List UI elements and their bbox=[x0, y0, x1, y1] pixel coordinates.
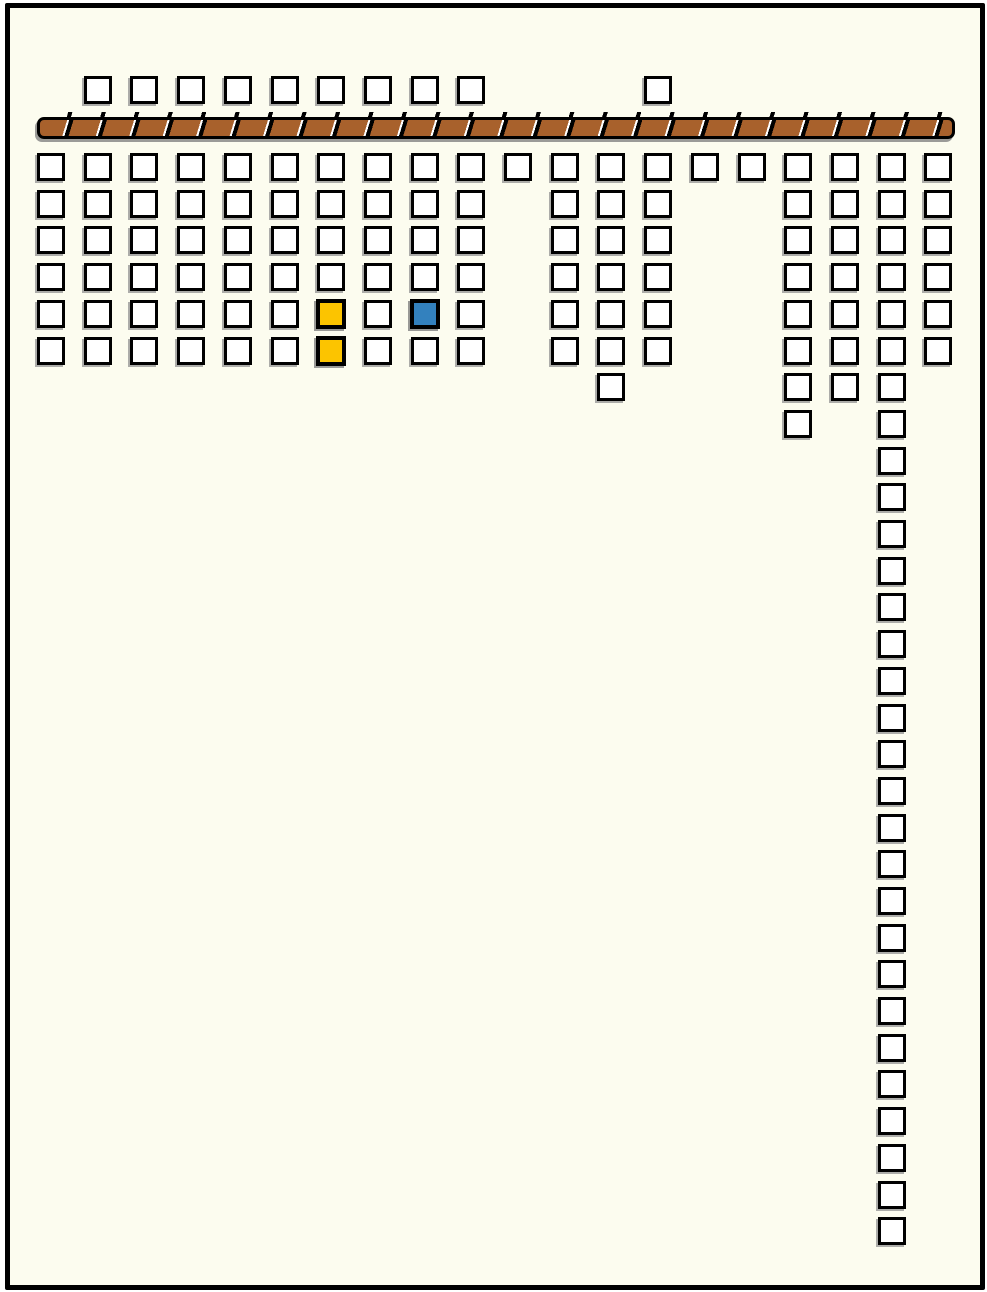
square-row-27-col19[interactable] bbox=[878, 1107, 906, 1135]
square-row-01-col12[interactable] bbox=[551, 153, 579, 181]
square-row-01-col14[interactable] bbox=[644, 153, 672, 181]
square-row-04-col14[interactable] bbox=[644, 263, 672, 291]
square-row-08-col19[interactable] bbox=[878, 410, 906, 438]
square-row-07-col17[interactable] bbox=[784, 373, 812, 401]
square-row-06-col2[interactable] bbox=[84, 337, 112, 365]
square-row-06-col1[interactable] bbox=[37, 337, 65, 365]
square-row-03-col4[interactable] bbox=[177, 226, 205, 254]
square-row-07-col19[interactable] bbox=[878, 373, 906, 401]
square-row-01-col19[interactable] bbox=[878, 153, 906, 181]
square-row-03-col9[interactable] bbox=[411, 226, 439, 254]
square-row-03-col20[interactable] bbox=[924, 226, 952, 254]
square-row-03-col12[interactable] bbox=[551, 226, 579, 254]
square-row-03-col6[interactable] bbox=[271, 226, 299, 254]
square-row-11-col19[interactable] bbox=[878, 520, 906, 548]
square-row-01-col13[interactable] bbox=[597, 153, 625, 181]
square-row-01-col15[interactable] bbox=[691, 153, 719, 181]
square-row-05-col13[interactable] bbox=[597, 300, 625, 328]
square-row-01-col20[interactable] bbox=[924, 153, 952, 181]
square-row-06-col4[interactable] bbox=[177, 337, 205, 365]
square-row-03-col8[interactable] bbox=[364, 226, 392, 254]
square-row-13-col19[interactable] bbox=[878, 593, 906, 621]
square-row-06-col14[interactable] bbox=[644, 337, 672, 365]
square-above-wall-col10[interactable] bbox=[457, 76, 485, 104]
square-row-01-col17[interactable] bbox=[784, 153, 812, 181]
square-row-01-col1[interactable] bbox=[37, 153, 65, 181]
square-above-wall-col8[interactable] bbox=[364, 76, 392, 104]
square-row-15-col19[interactable] bbox=[878, 667, 906, 695]
square-row-09-col19[interactable] bbox=[878, 447, 906, 475]
square-row-29-col19[interactable] bbox=[878, 1181, 906, 1209]
square-above-wall-col6[interactable] bbox=[271, 76, 299, 104]
square-row-03-col14[interactable] bbox=[644, 226, 672, 254]
square-row-16-col19[interactable] bbox=[878, 704, 906, 732]
square-row-03-col3[interactable] bbox=[130, 226, 158, 254]
square-row-04-col13[interactable] bbox=[597, 263, 625, 291]
square-row-04-col18[interactable] bbox=[831, 263, 859, 291]
square-row-05-col17[interactable] bbox=[784, 300, 812, 328]
square-row-06-col20[interactable] bbox=[924, 337, 952, 365]
square-row-06-col6[interactable] bbox=[271, 337, 299, 365]
square-above-wall-col5[interactable] bbox=[224, 76, 252, 104]
square-row-04-col20[interactable] bbox=[924, 263, 952, 291]
square-row-03-col1[interactable] bbox=[37, 226, 65, 254]
square-row-05-col1[interactable] bbox=[37, 300, 65, 328]
square-row-01-col9[interactable] bbox=[411, 153, 439, 181]
square-row-10-col19[interactable] bbox=[878, 483, 906, 511]
square-row-05-col4[interactable] bbox=[177, 300, 205, 328]
square-row-02-col13[interactable] bbox=[597, 190, 625, 218]
square-row-03-col10[interactable] bbox=[457, 226, 485, 254]
square-row-02-col5[interactable] bbox=[224, 190, 252, 218]
square-row-04-col7[interactable] bbox=[317, 263, 345, 291]
bar-hatching bbox=[37, 117, 955, 139]
square-row-05-col6[interactable] bbox=[271, 300, 299, 328]
square-row-02-col18[interactable] bbox=[831, 190, 859, 218]
square-row-06-col5[interactable] bbox=[224, 337, 252, 365]
square-row-22-col19[interactable] bbox=[878, 924, 906, 952]
square-row-01-col18[interactable] bbox=[831, 153, 859, 181]
square-row-06-col13[interactable] bbox=[597, 337, 625, 365]
square-row-05-col2[interactable] bbox=[84, 300, 112, 328]
square-row-03-col18[interactable] bbox=[831, 226, 859, 254]
square-row-05-col12[interactable] bbox=[551, 300, 579, 328]
square-row-03-col5[interactable] bbox=[224, 226, 252, 254]
square-row-30-col19[interactable] bbox=[878, 1217, 906, 1245]
square-row-04-col5[interactable] bbox=[224, 263, 252, 291]
square-row-08-col17[interactable] bbox=[784, 410, 812, 438]
square-row-05-col10[interactable] bbox=[457, 300, 485, 328]
square-row-19-col19[interactable] bbox=[878, 814, 906, 842]
square-row-01-col7[interactable] bbox=[317, 153, 345, 181]
square-above-wall-col7[interactable] bbox=[317, 76, 345, 104]
square-row-01-col2[interactable] bbox=[84, 153, 112, 181]
square-row-05-col8[interactable] bbox=[364, 300, 392, 328]
square-row-26-col19[interactable] bbox=[878, 1070, 906, 1098]
square-row-07-col18[interactable] bbox=[831, 373, 859, 401]
square-row-25-col19[interactable] bbox=[878, 1034, 906, 1062]
square-row-02-col12[interactable] bbox=[551, 190, 579, 218]
square-row-05-col3[interactable] bbox=[130, 300, 158, 328]
square-row-02-col8[interactable] bbox=[364, 190, 392, 218]
square-row-18-col19[interactable] bbox=[878, 777, 906, 805]
square-row-20-col19[interactable] bbox=[878, 850, 906, 878]
square-row-05-col18[interactable] bbox=[831, 300, 859, 328]
square-row-21-col19[interactable] bbox=[878, 887, 906, 915]
square-row-04-col10[interactable] bbox=[457, 263, 485, 291]
square-row-05-col20[interactable] bbox=[924, 300, 952, 328]
square-row-23-col19[interactable] bbox=[878, 960, 906, 988]
square-above-wall-col14[interactable] bbox=[644, 76, 672, 104]
square-above-wall-col3[interactable] bbox=[130, 76, 158, 104]
square-row-05-col14[interactable] bbox=[644, 300, 672, 328]
square-row-01-col4[interactable] bbox=[177, 153, 205, 181]
square-row-02-col9[interactable] bbox=[411, 190, 439, 218]
square-row-02-col1[interactable] bbox=[37, 190, 65, 218]
square-row-07-col13[interactable] bbox=[597, 373, 625, 401]
square-row-06-col12[interactable] bbox=[551, 337, 579, 365]
square-row-02-col2[interactable] bbox=[84, 190, 112, 218]
square-row-02-col3[interactable] bbox=[130, 190, 158, 218]
square-row-02-col4[interactable] bbox=[177, 190, 205, 218]
square-above-wall-col4[interactable] bbox=[177, 76, 205, 104]
square-above-wall-col9[interactable] bbox=[411, 76, 439, 104]
square-row-04-col6[interactable] bbox=[271, 263, 299, 291]
square-row-02-col6[interactable] bbox=[271, 190, 299, 218]
square-row-02-col20[interactable] bbox=[924, 190, 952, 218]
square-row-01-col16[interactable] bbox=[738, 153, 766, 181]
square-row-01-col11[interactable] bbox=[504, 153, 532, 181]
blue-highlighted-square-row-05-col9[interactable] bbox=[410, 299, 440, 329]
square-above-wall-col2[interactable] bbox=[84, 76, 112, 104]
diagram-layer bbox=[0, 0, 987, 1292]
yellow-highlighted-square-row-06-col7[interactable] bbox=[316, 336, 346, 366]
square-row-04-col8[interactable] bbox=[364, 263, 392, 291]
square-row-02-col14[interactable] bbox=[644, 190, 672, 218]
square-row-03-col19[interactable] bbox=[878, 226, 906, 254]
square-row-04-col4[interactable] bbox=[177, 263, 205, 291]
square-row-01-col3[interactable] bbox=[130, 153, 158, 181]
square-row-04-col19[interactable] bbox=[878, 263, 906, 291]
square-row-02-col19[interactable] bbox=[878, 190, 906, 218]
square-row-02-col7[interactable] bbox=[317, 190, 345, 218]
square-row-01-col5[interactable] bbox=[224, 153, 252, 181]
square-row-06-col10[interactable] bbox=[457, 337, 485, 365]
square-row-05-col19[interactable] bbox=[878, 300, 906, 328]
square-row-24-col19[interactable] bbox=[878, 997, 906, 1025]
hatched-wall-bar[interactable] bbox=[37, 112, 955, 139]
square-row-03-col2[interactable] bbox=[84, 226, 112, 254]
square-row-03-col17[interactable] bbox=[784, 226, 812, 254]
square-row-06-col17[interactable] bbox=[784, 337, 812, 365]
square-row-01-col10[interactable] bbox=[457, 153, 485, 181]
square-row-02-col10[interactable] bbox=[457, 190, 485, 218]
square-row-05-col5[interactable] bbox=[224, 300, 252, 328]
square-row-03-col13[interactable] bbox=[597, 226, 625, 254]
yellow-highlighted-square-row-05-col7[interactable] bbox=[316, 299, 346, 329]
square-row-01-col8[interactable] bbox=[364, 153, 392, 181]
square-row-06-col19[interactable] bbox=[878, 337, 906, 365]
square-row-12-col19[interactable] bbox=[878, 557, 906, 585]
square-row-28-col19[interactable] bbox=[878, 1144, 906, 1172]
square-row-04-col9[interactable] bbox=[411, 263, 439, 291]
square-row-14-col19[interactable] bbox=[878, 630, 906, 658]
square-row-04-col1[interactable] bbox=[37, 263, 65, 291]
square-row-04-col3[interactable] bbox=[130, 263, 158, 291]
square-row-02-col17[interactable] bbox=[784, 190, 812, 218]
square-row-06-col18[interactable] bbox=[831, 337, 859, 365]
square-row-06-col3[interactable] bbox=[130, 337, 158, 365]
square-row-04-col2[interactable] bbox=[84, 263, 112, 291]
square-row-06-col8[interactable] bbox=[364, 337, 392, 365]
square-row-03-col7[interactable] bbox=[317, 226, 345, 254]
square-row-06-col9[interactable] bbox=[411, 337, 439, 365]
square-row-01-col6[interactable] bbox=[271, 153, 299, 181]
square-row-17-col19[interactable] bbox=[878, 740, 906, 768]
square-row-04-col12[interactable] bbox=[551, 263, 579, 291]
square-row-04-col17[interactable] bbox=[784, 263, 812, 291]
